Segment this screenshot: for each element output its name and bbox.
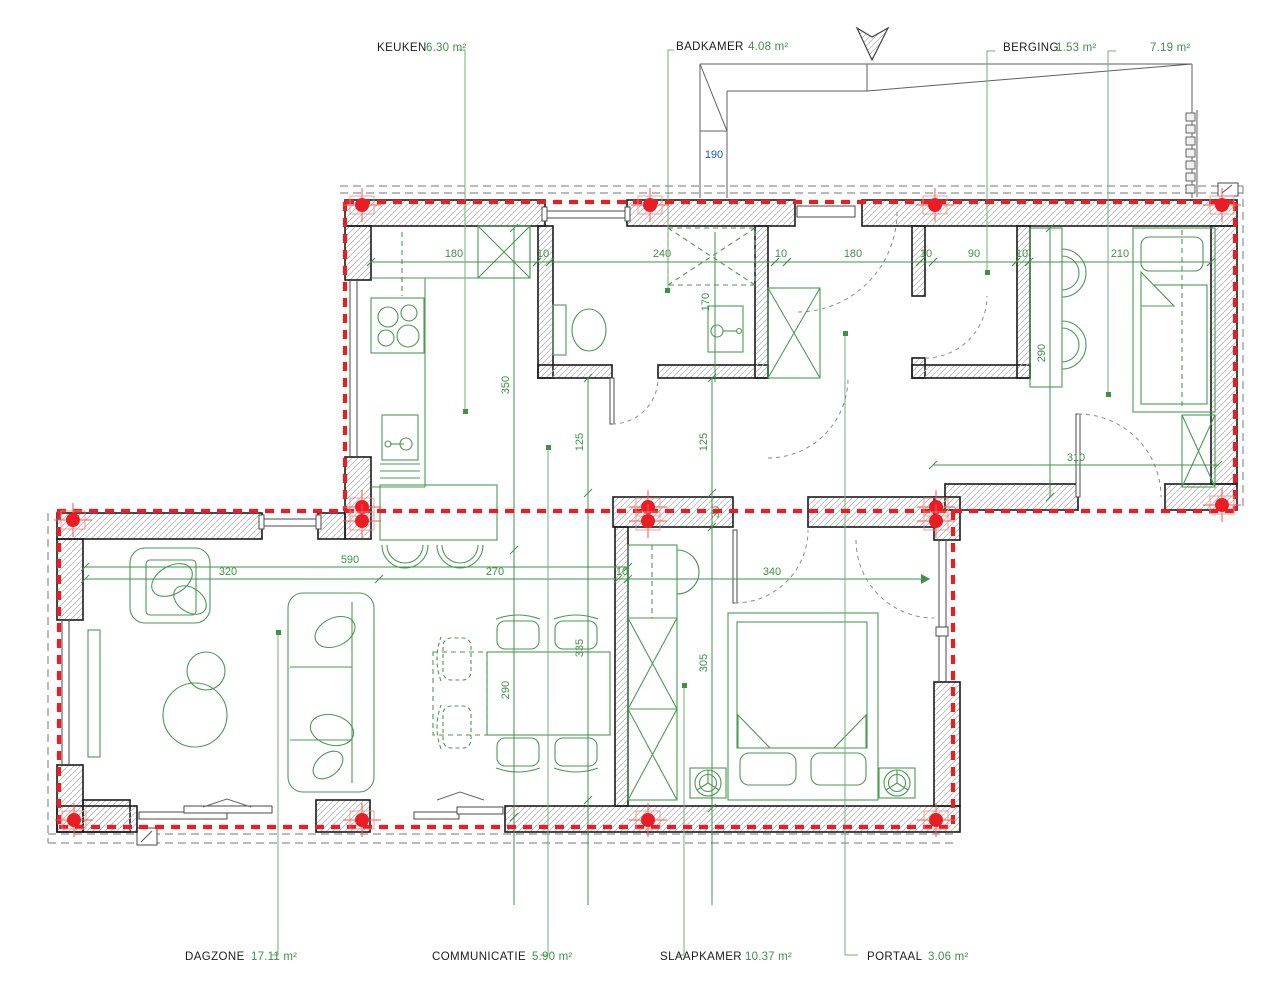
dining-table [433,615,610,772]
room-label-keuken: KEUKEN [377,42,427,54]
sliding-door-right [414,792,503,819]
bedroom2-door-swing [1078,414,1161,497]
badkamer-door-leaf [610,378,614,424]
dim-communicatie-width: 270 [486,566,504,578]
dim-bedroom2-width: 210 [1111,248,1129,260]
stove [371,298,424,353]
dim-290-kitchen: 290 [500,681,512,699]
shower [668,228,755,285]
badkamer-door-swing [612,378,658,424]
toilet [553,305,606,355]
entrance-door-leaf [797,206,855,217]
floorplan-drawing: 180 10 240 10 180 10 90 10 210 350 290 1… [0,0,1280,982]
double-bed [728,613,878,800]
dim-wall: 10 [1016,248,1028,260]
north-arrow-icon [857,28,888,60]
room-area-badkamer: 4.08 m² [748,41,788,53]
gutter-chain-icon [1186,113,1195,193]
dim-125-b: 125 [698,433,710,451]
window-living-top [259,515,321,529]
room-area-slaapkamer: 10.37 m² [745,951,792,963]
dim-slaapkamer-depth: 305 [698,654,710,672]
dim-living-width: 320 [219,566,237,578]
sofa [288,593,374,792]
dim-chimney-blue: 190 [705,149,723,161]
roof-plan-lines [137,28,1238,845]
slaapkamer-door-leaf [733,530,737,603]
room-label-communicatie: COMMUNICATIE [432,951,526,963]
sliding-door-left [139,799,272,819]
dim-335: 335 [574,639,586,657]
armchair [130,548,212,623]
nightstands [690,768,915,798]
dim-kitchen-depth: 350 [500,376,512,394]
window-top-kitchen [542,207,630,221]
dim-shower: 170 [700,293,712,311]
washbasin [708,306,743,352]
bedroom2-wardrobe [1182,415,1215,487]
slaapkamer-wardrobe [628,545,699,800]
room-label-portaal: PORTAAL [867,951,923,963]
dim-wall: 10 [616,566,628,578]
dim-portaal-width: 180 [844,248,862,260]
bedroom2-bed [1133,228,1215,412]
kitchen-sink [380,415,420,485]
coffee-table-large [163,683,227,747]
room-area-keuken: 6.30 m² [426,42,466,54]
room-area-dagzone: 17.11 m² [251,951,297,963]
dim-bedroom2-depth: 290 [1036,344,1048,362]
dim-berging-width: 90 [968,248,980,260]
radiator [88,630,100,757]
dim-wall: 10 [920,248,932,260]
window-kitchen-left [350,280,357,457]
kitchen-island [380,485,497,568]
kitchen-counter [371,226,530,487]
room-label-berging: BERGING [1003,42,1059,54]
room-label-badkamer: BADKAMER [676,41,744,53]
dim-wall: 10 [775,248,787,260]
portaal-door-swing [768,378,848,458]
room-area-portaal: 3.06 m² [928,951,968,963]
window-living-left [62,620,69,765]
dim-125-a: 125 [574,433,586,451]
floorplan-canvas: 180 10 240 10 180 10 90 10 210 350 290 1… [0,0,1280,982]
berging-door-swing [925,296,987,358]
coffee-table-small [187,652,225,690]
room-area-berging: 1.53 m² [1056,42,1096,54]
dim-slaapkamer-width: 340 [763,566,781,578]
dim-wall: 10 [537,248,549,260]
room-label-dagzone: DAGZONE [185,951,245,963]
window-slaapkamer-right [936,540,948,682]
dim-kitchen-width: 180 [445,248,463,260]
dim-310: 310 [1067,452,1085,464]
room-label-slaapkamer: SLAAPKAMER [660,951,742,963]
room-area-bedroom2: 7.19 m² [1150,42,1190,54]
portaal-closet [768,288,820,378]
room-area-communicatie: 5.90 m² [532,951,572,963]
dim-590: 590 [341,554,359,566]
